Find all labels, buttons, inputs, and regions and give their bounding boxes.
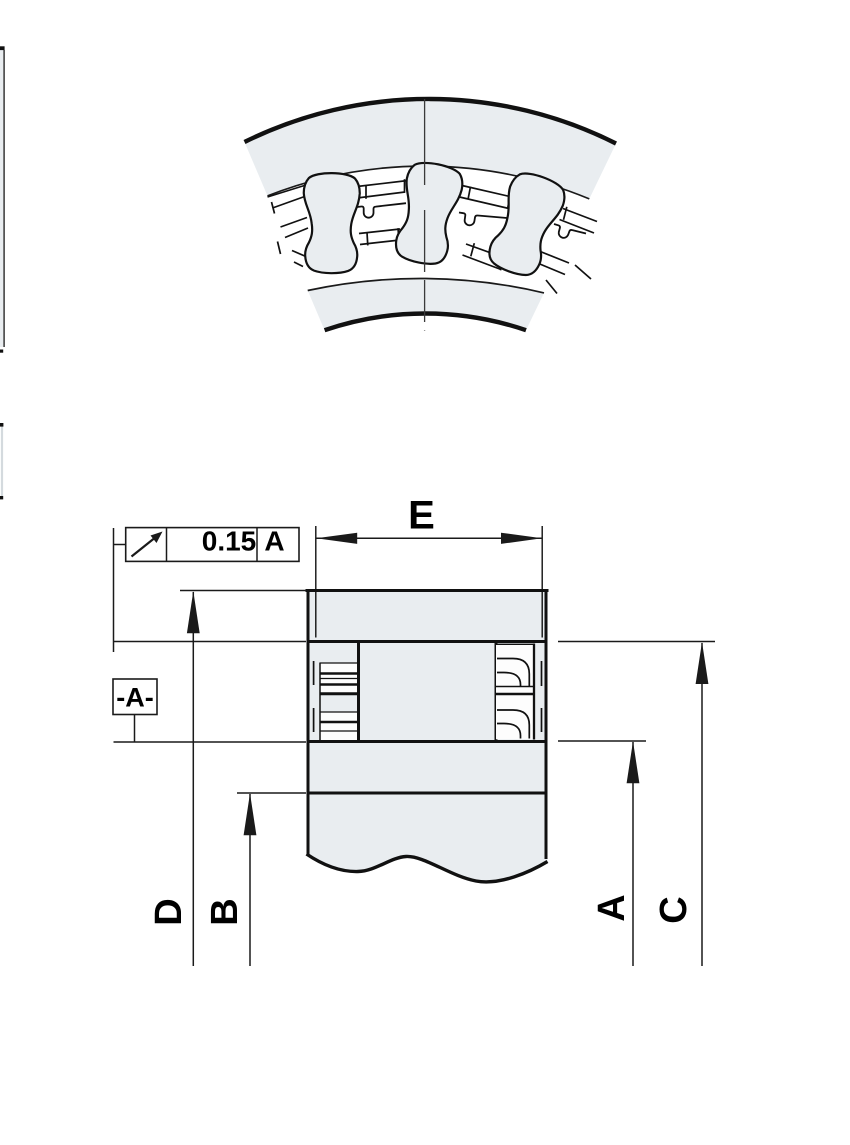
svg-text:B: B [204,898,246,925]
svg-text:-A-: -A- [116,683,153,713]
svg-text:E: E [408,494,435,538]
svg-text:D: D [148,898,190,925]
svg-text:A: A [264,526,284,557]
svg-text:A: A [591,894,633,921]
svg-text:0.15: 0.15 [202,526,257,557]
svg-text:C: C [653,896,695,923]
